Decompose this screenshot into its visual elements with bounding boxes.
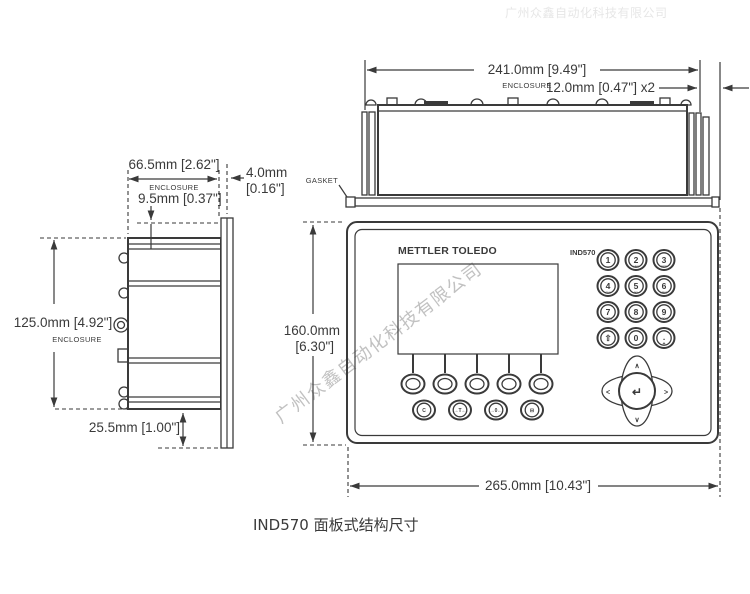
softkey-3: [466, 375, 489, 394]
bezel-strip: [355, 198, 715, 206]
top-enclosure-label: ENCLOSURE: [502, 81, 551, 90]
softkey-5: [530, 375, 553, 394]
clear-key-glyph: C: [422, 408, 426, 414]
front-width-dim-label: 265.0mm [10.43"]: [485, 478, 591, 493]
numeric-key-5: 5JKL: [626, 276, 647, 296]
bezel-overhang-dim-label: 12.0mm [0.47"] x2: [546, 80, 655, 95]
connector-tab: [118, 349, 128, 362]
svg-text:GHI: GHI: [605, 291, 611, 295]
right-bracket-bar: [703, 117, 709, 195]
nav-left-arrow: <: [606, 390, 610, 397]
nav-up-arrow: ∧: [634, 363, 639, 370]
top-width-dim-label: 241.0mm [9.49"]: [488, 62, 587, 77]
softkey-4: [498, 375, 521, 394]
decimal-key: .◂▸: [654, 328, 675, 348]
screw-bump: [366, 100, 376, 105]
clear-key: C: [413, 401, 435, 420]
svg-text:◂▸: ◂▸: [662, 341, 666, 345]
zero-key: →0←: [485, 401, 507, 420]
svg-text:9: 9: [662, 307, 667, 317]
gasket-label: GASKET: [306, 176, 338, 185]
svg-text:⇧: ⇧: [604, 333, 611, 343]
side-view-chassis: [128, 238, 221, 409]
numeric-key-8: 8TUV: [626, 302, 647, 322]
numeric-key-6: 6MNO: [654, 276, 675, 296]
right-bracket-bar: [689, 113, 694, 195]
ind570-dimension-drawing: 241.0mm [9.49"] ENCLOSURE 12.0mm [0.47"]…: [0, 0, 750, 594]
dimension-drawing-page: 广州众鑫自动化科技有限公司 广州众鑫自动化科技有限公司: [0, 0, 750, 594]
brand-logo: METTLER TOLEDO: [398, 245, 497, 257]
svg-text:3: 3: [662, 255, 667, 265]
svg-text:TUV: TUV: [633, 317, 639, 321]
depth-dim-label: 66.5mm [2.62"]: [128, 157, 219, 172]
front-height-dim-mm-label: 160.0mm: [284, 323, 340, 338]
numeric-key-3: 3DEF: [654, 250, 675, 270]
svg-text:DEF: DEF: [661, 265, 667, 269]
zero-key-glyph: →0←: [490, 408, 503, 414]
top-view: 241.0mm [9.49"] ENCLOSURE 12.0mm [0.47"]…: [306, 60, 749, 207]
svg-text:ABC: ABC: [633, 265, 640, 269]
height-enclosure-label: ENCLOSURE: [52, 335, 101, 344]
numeric-key-9: 9WXYZ: [654, 302, 675, 322]
front-height-dim-in-label: [6.30"]: [295, 339, 334, 354]
print-key-glyph: ⊟: [530, 408, 534, 414]
numeric-key-2: 2ABC: [626, 250, 647, 270]
side-view: 66.5mm [2.62"] ENCLOSURE 9.5mm [0.37"] 4…: [14, 157, 288, 448]
recess-dim-label: 9.5mm [0.37"]: [138, 191, 222, 206]
clip-tab: [387, 98, 397, 105]
bottom-offset-dim-label: 25.5mm [1.00"]: [89, 420, 180, 435]
tare-key: →T←: [449, 401, 471, 420]
nav-down-arrow: ∨: [634, 417, 639, 424]
svg-text:7: 7: [606, 307, 611, 317]
softkey-2: [434, 375, 457, 394]
svg-text:JKL: JKL: [633, 291, 639, 295]
left-bracket-bar: [362, 112, 367, 195]
height-dim-label: 125.0mm [4.92"]: [14, 315, 113, 330]
svg-text:6: 6: [662, 281, 667, 291]
drawing-caption: IND570 面板式结构尺寸: [253, 516, 419, 534]
svg-text:4: 4: [606, 281, 611, 291]
bezel-dim-in-label: [0.16"]: [246, 181, 285, 196]
gasket-end-right: [712, 197, 719, 207]
clip-tab: [508, 98, 518, 105]
nav-right-arrow: >: [664, 390, 668, 397]
svg-text:0: 0: [634, 333, 639, 343]
enter-key-glyph: ↵: [632, 385, 642, 399]
bezel-dim-mm-label: 4.0mm: [246, 165, 287, 180]
svg-text:PQRS: PQRS: [604, 317, 613, 321]
svg-text:WXYZ: WXYZ: [660, 317, 669, 321]
tare-key-glyph: →T←: [453, 408, 466, 414]
display: [398, 264, 558, 354]
svg-text:MNO: MNO: [661, 291, 669, 295]
top-view-enclosure-body: [378, 105, 687, 195]
svg-text:8: 8: [634, 307, 639, 317]
svg-text:2: 2: [634, 255, 639, 265]
numeric-key-7: 7PQRS: [598, 302, 619, 322]
connector-bump: [118, 322, 125, 329]
numeric-key-4: 4GHI: [598, 276, 619, 296]
gasket-end-left: [346, 197, 355, 207]
left-bracket-bar: [369, 112, 375, 195]
softkey-1: [402, 375, 425, 394]
print-key: ⊟: [521, 401, 543, 420]
numeric-key-1: 1: [598, 250, 619, 270]
svg-text:5: 5: [634, 281, 639, 291]
clip-tab: [660, 98, 670, 105]
nav-pad: ∧ ∨ < > ↵: [602, 356, 672, 426]
shift-key: ⇧: [598, 328, 619, 348]
right-bracket-bar: [696, 113, 701, 195]
gasket-leader-line: [339, 185, 347, 197]
front-view: METTLER TOLEDO IND570 C →T←: [284, 208, 720, 497]
model-label: IND570: [570, 248, 595, 257]
svg-text:1: 1: [606, 255, 611, 265]
numeric-key-0: 0: [626, 328, 647, 348]
